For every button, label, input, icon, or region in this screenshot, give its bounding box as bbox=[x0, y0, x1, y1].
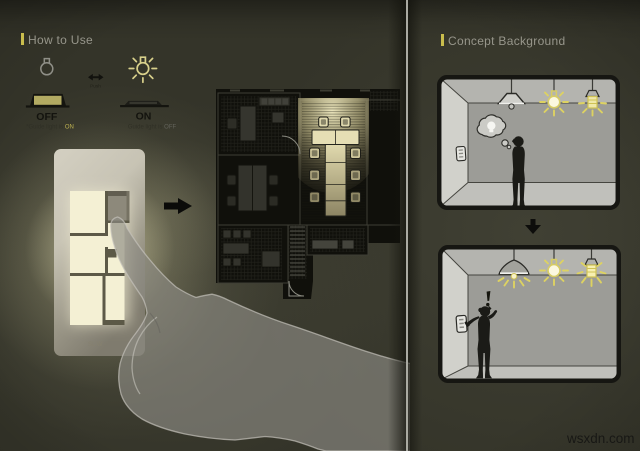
svg-text:Guide light is OFF: Guide light is OFF bbox=[128, 125, 177, 131]
svg-text:Push: Push bbox=[90, 84, 101, 90]
svg-text:OFF: OFF bbox=[36, 111, 58, 123]
svg-text:ON: ON bbox=[136, 111, 152, 123]
svg-text:*Guide light is ON: *Guide light is ON bbox=[26, 125, 74, 131]
